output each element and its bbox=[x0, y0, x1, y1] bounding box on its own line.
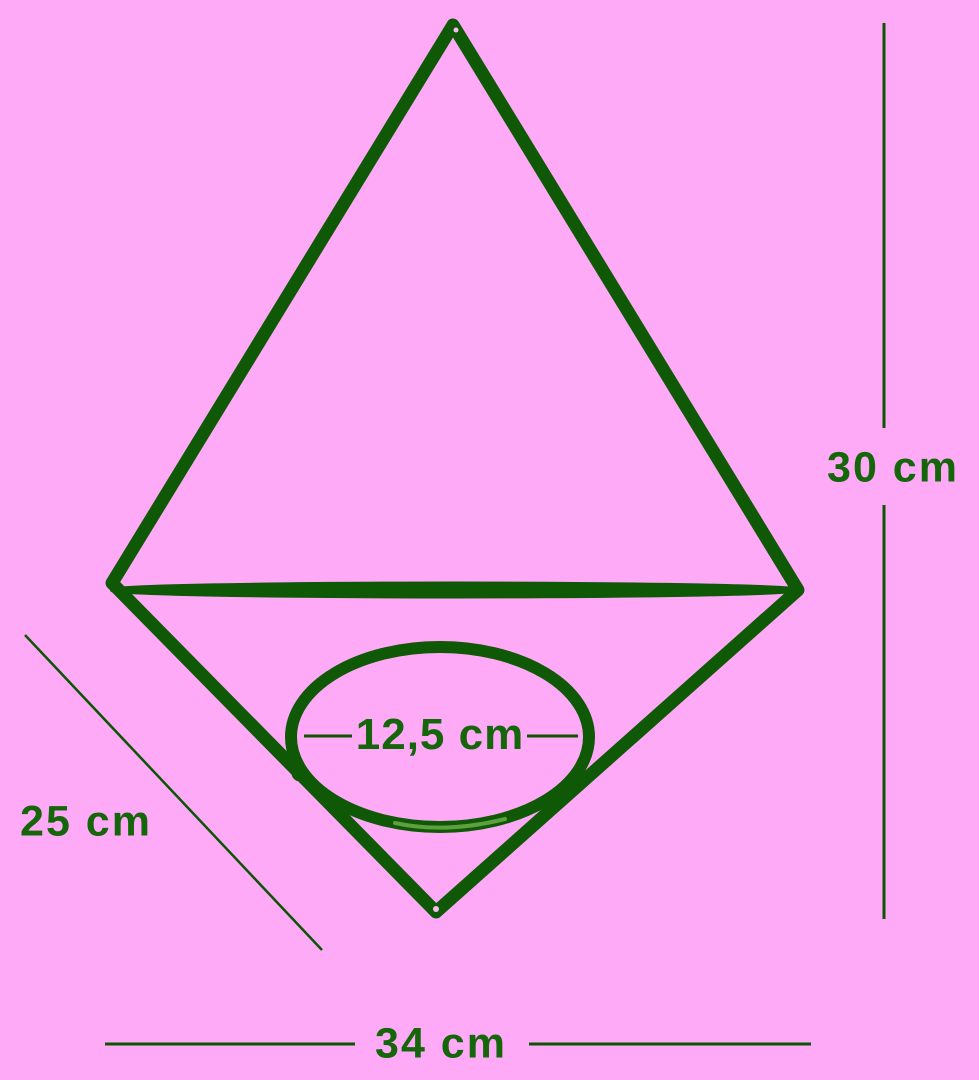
apex-highlight-bottom bbox=[433, 906, 439, 912]
apex-highlight-top bbox=[454, 28, 459, 33]
ring-weld-left bbox=[292, 765, 308, 781]
diamond-frame-outline bbox=[112, 25, 798, 912]
width-dimension-label: 34 cm bbox=[375, 1023, 507, 1066]
height-dimension-label: 30 cm bbox=[827, 447, 959, 490]
rim-edge-bar bbox=[112, 584, 798, 597]
ring-diameter-label: 12,5 cm bbox=[356, 713, 524, 757]
wireframe-drawing bbox=[0, 0, 979, 1080]
edge-dimension-label: 25 cm bbox=[20, 801, 152, 844]
planter-dimension-diagram: 30 cm 25 cm 34 cm 12,5 cm bbox=[0, 0, 979, 1080]
ring-weld-right bbox=[570, 771, 586, 787]
edge-dim-line bbox=[25, 635, 322, 950]
